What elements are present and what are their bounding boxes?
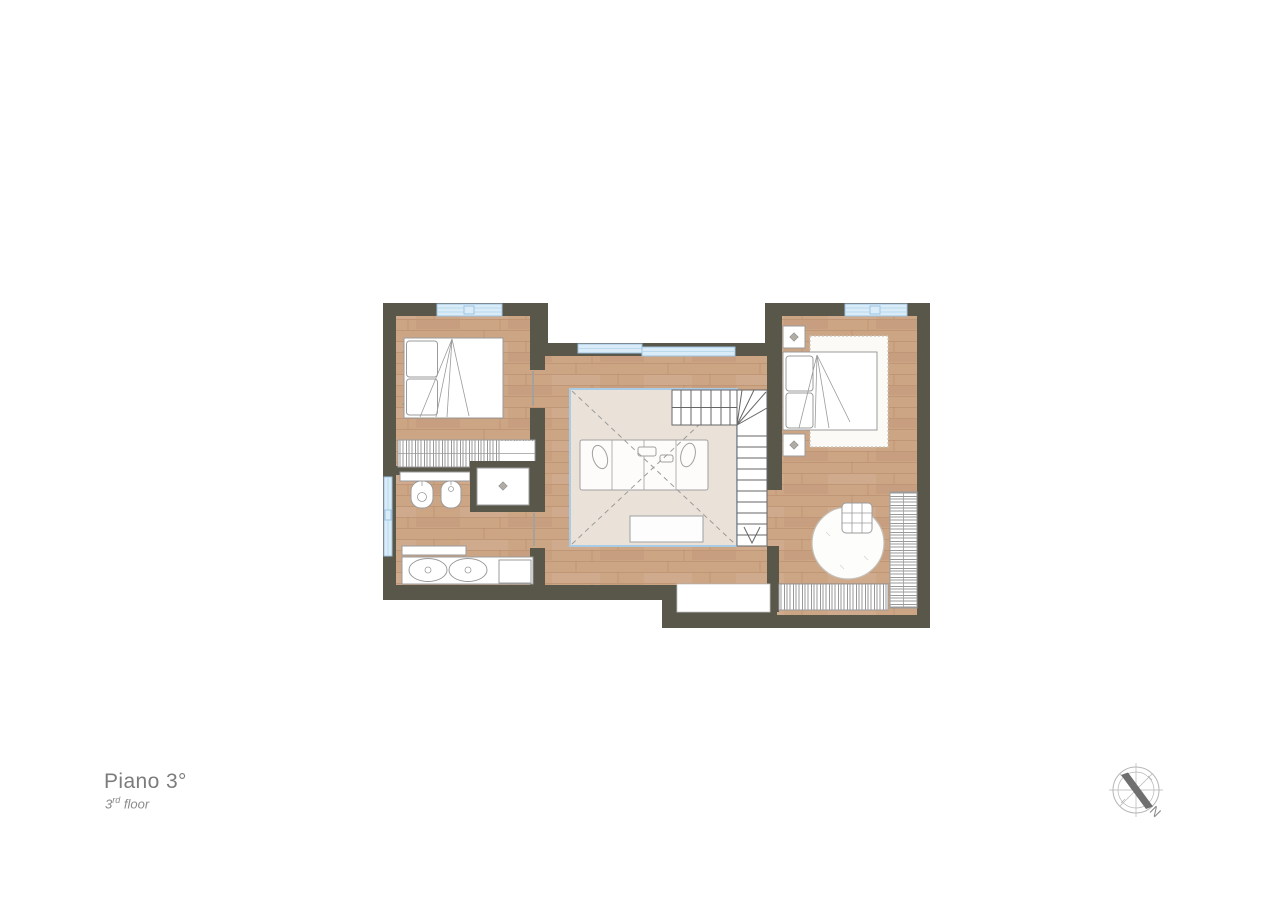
bed-double-left bbox=[404, 338, 503, 418]
window-bathroom bbox=[384, 477, 392, 556]
bathroom-shelf bbox=[400, 472, 470, 481]
radiator bbox=[402, 546, 466, 555]
compass-icon: N bbox=[1109, 763, 1164, 820]
bidet bbox=[441, 481, 461, 508]
bed-double-right bbox=[783, 352, 877, 430]
coffee-table-below bbox=[630, 516, 703, 542]
side-table bbox=[842, 503, 872, 533]
wardrobe-bottom-wall bbox=[779, 584, 888, 610]
toilet bbox=[411, 481, 433, 508]
floor-title: Piano 3° bbox=[104, 770, 187, 794]
window-right-bedroom bbox=[845, 304, 907, 316]
floor-plan-page: N Piano 3° 3rd floor bbox=[0, 0, 1280, 905]
vanity-sinks bbox=[402, 557, 533, 584]
shower bbox=[470, 461, 536, 512]
floor-plan-drawing: N bbox=[0, 0, 1280, 905]
window-left-bedroom bbox=[437, 304, 502, 316]
sofa-below bbox=[580, 440, 708, 490]
balcony-niche bbox=[677, 584, 770, 612]
floor-subtitle: 3rd floor bbox=[105, 795, 149, 811]
floor-suffix: floor bbox=[120, 796, 149, 811]
